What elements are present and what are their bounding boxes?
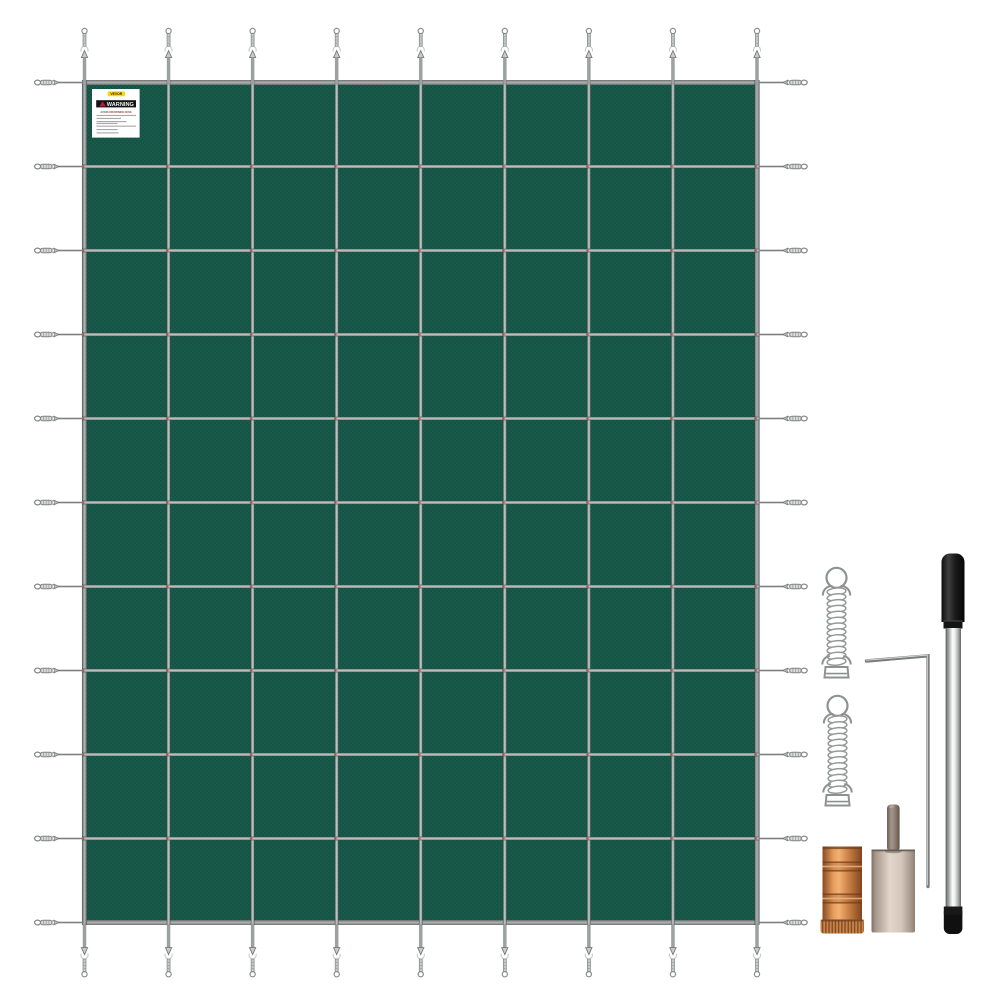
svg-text:WARNING: WARNING	[107, 102, 134, 108]
svg-text:AVOID DROWNING RISK: AVOID DROWNING RISK	[100, 110, 132, 114]
svg-text:VEVOR: VEVOR	[110, 92, 122, 96]
